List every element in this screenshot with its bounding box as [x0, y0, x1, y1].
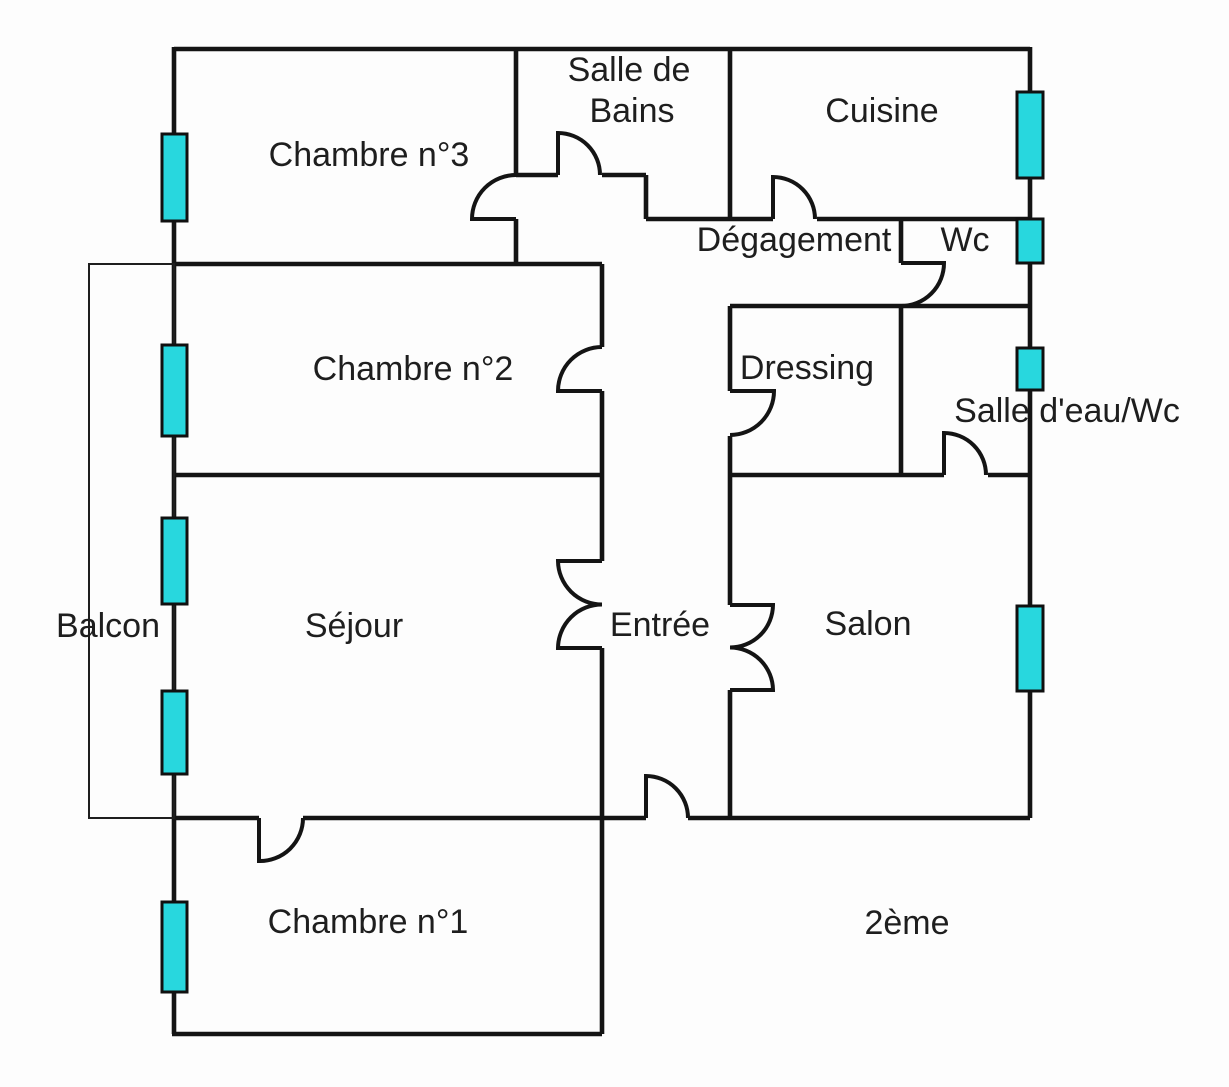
svg-text:Salle de: Salle de — [568, 51, 691, 89]
svg-text:Entrée: Entrée — [610, 606, 710, 644]
svg-text:2ème: 2ème — [864, 904, 949, 942]
svg-text:Chambre n°2: Chambre n°2 — [313, 350, 514, 388]
svg-text:Séjour: Séjour — [305, 607, 403, 645]
svg-text:Dressing: Dressing — [740, 349, 874, 387]
svg-text:Cuisine: Cuisine — [825, 92, 938, 130]
svg-text:Dégagement: Dégagement — [697, 221, 892, 259]
svg-text:Bains: Bains — [589, 92, 674, 130]
svg-text:Chambre n°1: Chambre n°1 — [268, 903, 469, 941]
svg-text:Wc: Wc — [940, 221, 989, 259]
svg-text:Balcon: Balcon — [56, 607, 160, 645]
svg-text:Salon: Salon — [825, 605, 912, 643]
svg-text:Salle d'eau/Wc: Salle d'eau/Wc — [954, 392, 1180, 430]
svg-text:Chambre n°3: Chambre n°3 — [269, 136, 470, 174]
